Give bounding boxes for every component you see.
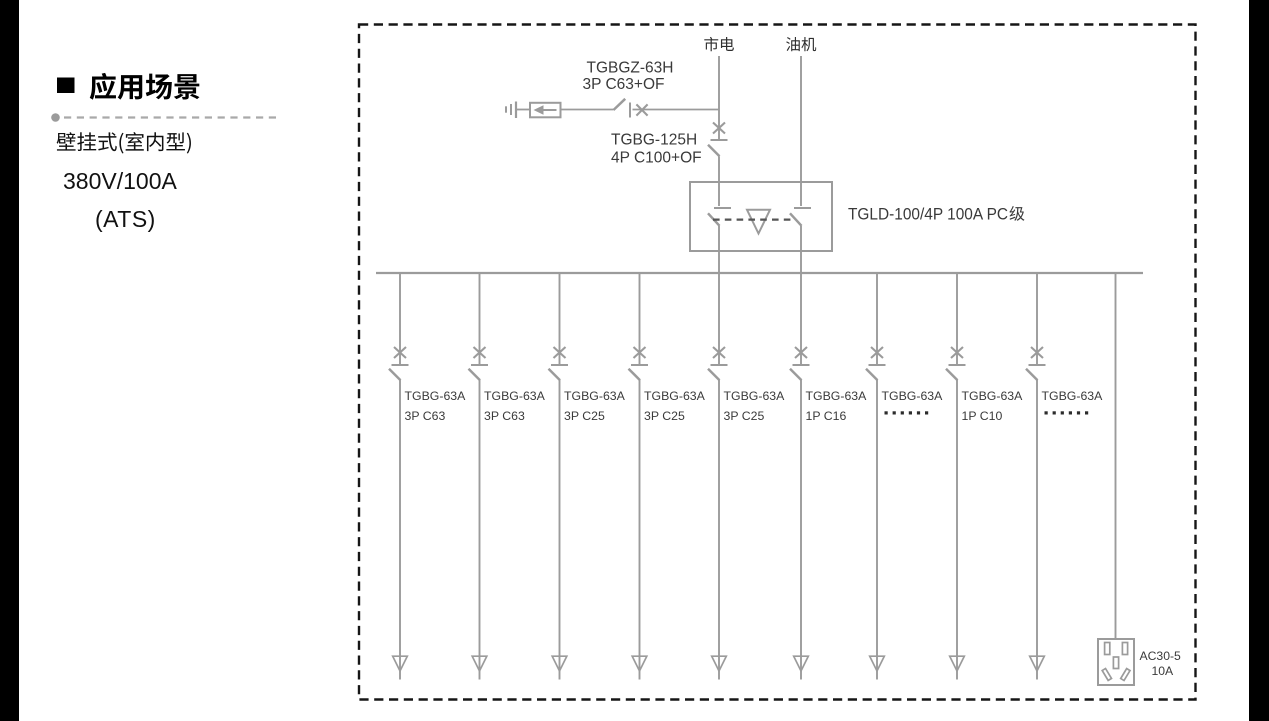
svg-text:TGBG-63A: TGBG-63A bbox=[724, 389, 786, 403]
svg-text:TGBG-63A: TGBG-63A bbox=[962, 389, 1024, 403]
svg-text:3P C25: 3P C25 bbox=[724, 409, 765, 423]
svg-text:TGLD-100/4P 100A PC: TGLD-100/4P 100A PC bbox=[848, 206, 1008, 224]
svg-text:4P C100+OF: 4P C100+OF bbox=[611, 150, 702, 167]
svg-text:3P C25: 3P C25 bbox=[564, 409, 605, 423]
svg-text:TGBG-63A: TGBG-63A bbox=[644, 389, 706, 403]
svg-text:10A: 10A bbox=[1152, 664, 1175, 678]
svg-text:TGBG-63A: TGBG-63A bbox=[1042, 389, 1104, 403]
svg-text:380V/100A: 380V/100A bbox=[63, 168, 177, 194]
svg-text:(ATS): (ATS) bbox=[95, 206, 156, 232]
svg-text:TGBG-125H: TGBG-125H bbox=[611, 132, 697, 149]
svg-text:3P C63: 3P C63 bbox=[484, 409, 525, 423]
svg-text:3P C63: 3P C63 bbox=[405, 409, 446, 423]
svg-text:TGBG-63A: TGBG-63A bbox=[882, 389, 944, 403]
svg-text:TGBG-63A: TGBG-63A bbox=[806, 389, 868, 403]
svg-text:TGBG-63A: TGBG-63A bbox=[484, 389, 546, 403]
svg-text:3P C63+OF: 3P C63+OF bbox=[583, 76, 665, 93]
svg-text:3P C25: 3P C25 bbox=[644, 409, 685, 423]
svg-text:1P C10: 1P C10 bbox=[962, 409, 1003, 423]
svg-text:AC30-5: AC30-5 bbox=[1140, 649, 1182, 663]
svg-text:TGBG-63A: TGBG-63A bbox=[405, 389, 467, 403]
svg-text:1P C16: 1P C16 bbox=[806, 409, 847, 423]
svg-text:TGBGZ-63H: TGBGZ-63H bbox=[587, 60, 674, 77]
svg-text:TGBG-63A: TGBG-63A bbox=[564, 389, 626, 403]
